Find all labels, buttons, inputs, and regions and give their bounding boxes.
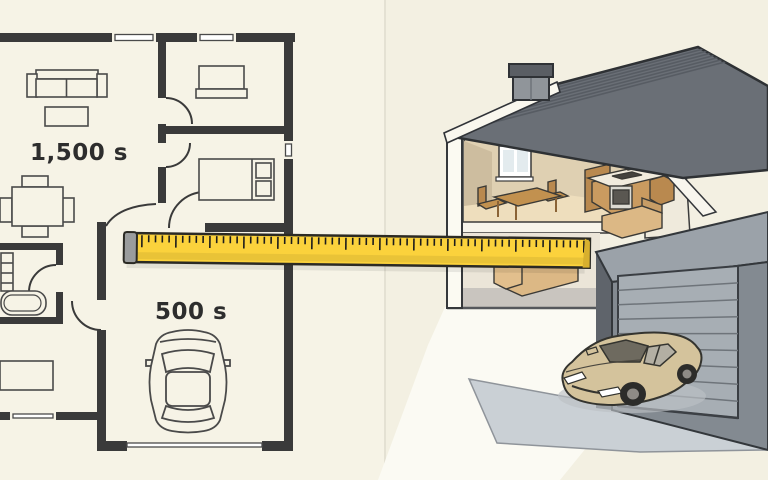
wall-garage-bottom-right	[262, 441, 293, 451]
dresser-icon	[196, 66, 247, 98]
floor-slab-icon	[455, 222, 613, 233]
window-icon	[200, 35, 233, 41]
wall-bath-v1	[56, 243, 63, 265]
scene: 1,500 s 500 s	[0, 0, 768, 480]
sink-shelf-icon	[1, 253, 13, 291]
chimney-icon	[509, 64, 553, 100]
wall-interior-v1	[158, 33, 166, 98]
label-garage-area: 500 s	[155, 299, 227, 325]
wall-bath-v2	[56, 292, 63, 317]
ruler-icon	[124, 232, 590, 274]
window-icon	[115, 35, 153, 41]
ruler-end-cap	[124, 232, 137, 263]
wall-garage-left-lower	[97, 330, 106, 451]
desk-icon	[0, 361, 53, 390]
wall-bedroom2-bottom	[205, 223, 293, 232]
wall-bath-bottom	[0, 317, 63, 324]
garage-door-opening	[127, 443, 262, 447]
window-icon	[286, 144, 292, 156]
car-top-view-icon	[146, 330, 230, 433]
sofa-icon	[27, 70, 107, 97]
window-sill	[496, 177, 533, 181]
wall-garage-bottom-left	[97, 441, 127, 451]
wall-garage-left-upper	[97, 222, 106, 300]
bed-icon	[199, 159, 274, 200]
wall-interior-v3	[158, 167, 166, 203]
coffee-table-icon	[45, 107, 88, 126]
cut-wall-white	[447, 136, 462, 308]
bathtub-icon	[1, 291, 46, 315]
wall-bath-top	[0, 243, 63, 250]
window-icon	[13, 414, 53, 418]
illustration-canvas: 1,500 s 500 s	[0, 0, 768, 480]
label-living-area: 1,500 s	[30, 140, 128, 166]
wall-bedroom-divider	[158, 126, 293, 134]
